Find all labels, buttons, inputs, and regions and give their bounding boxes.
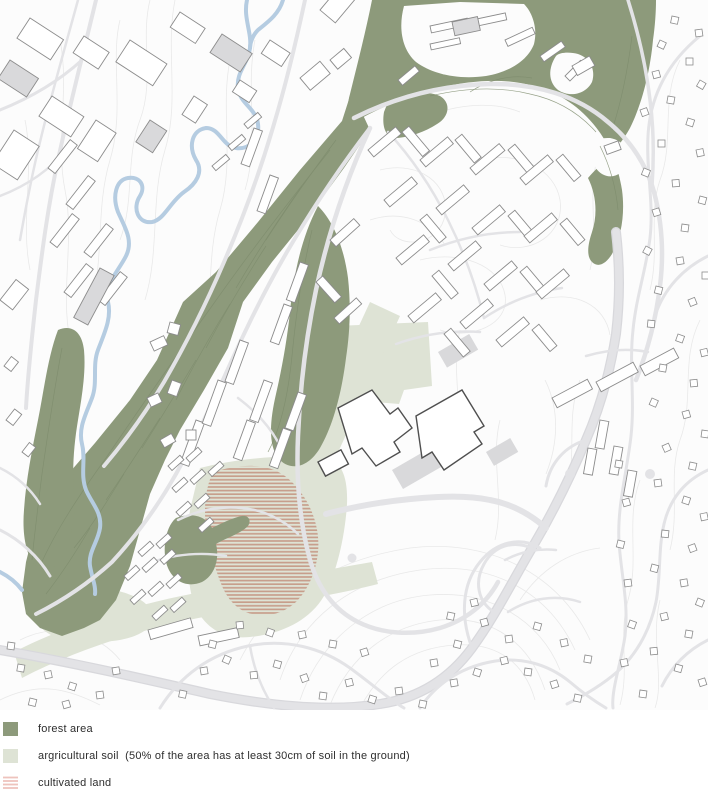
land-use-map-page: forest area argricultural soil (50% of t… (0, 0, 708, 800)
map-svg (0, 0, 708, 710)
agricultural-soil-swatch (3, 749, 18, 763)
forest-area-swatch (3, 722, 18, 736)
map-canvas (0, 0, 708, 710)
legend-label-agricultural-soil: argricultural soil (50% of the area has … (38, 750, 410, 762)
cultivated-land-swatch (3, 776, 18, 790)
legend-label-cultivated-land: cultivated land (38, 777, 111, 789)
legend-label-forest-area: forest area (38, 723, 93, 735)
map-legend: forest area argricultural soil (50% of t… (0, 710, 708, 800)
